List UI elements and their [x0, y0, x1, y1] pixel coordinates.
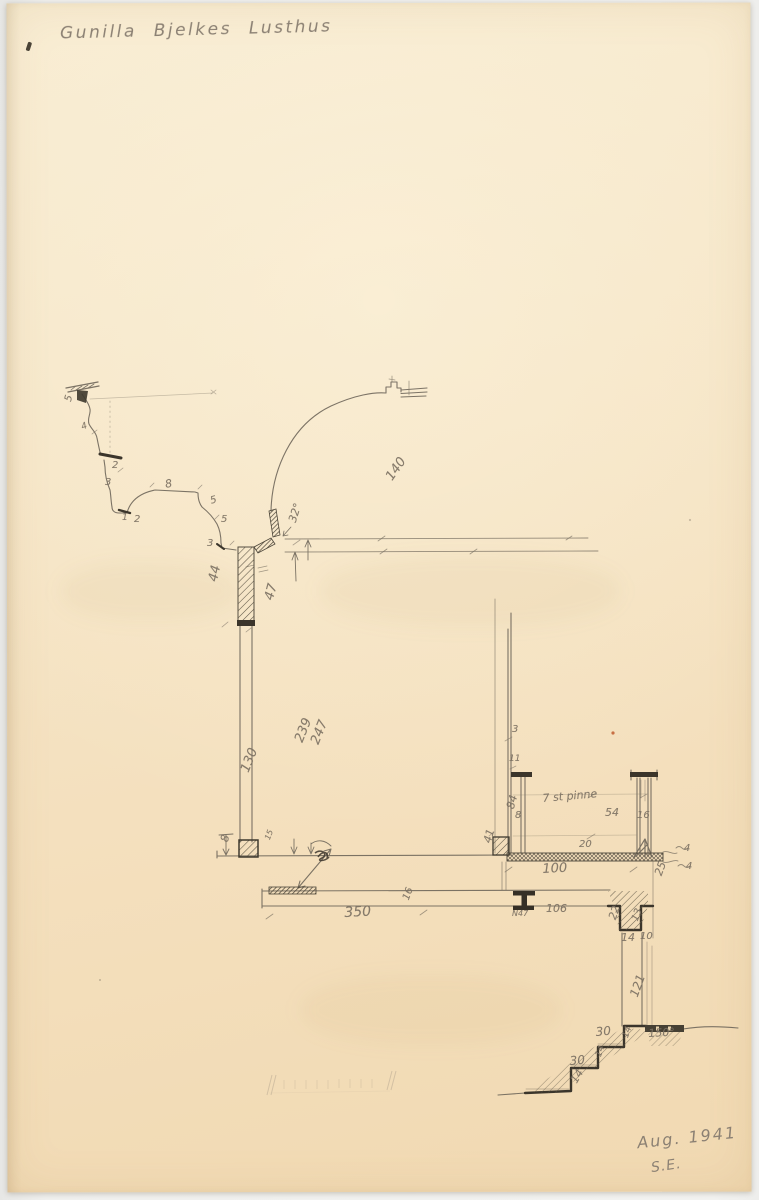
dimension-label: 4: [684, 843, 690, 854]
dimension-label: 100: [542, 861, 568, 877]
dimension-label: 4: [686, 861, 692, 872]
dimension-label: 8: [515, 810, 521, 821]
dimension-label: 3: [512, 724, 518, 735]
dimension-label: 350: [344, 904, 372, 921]
heavy-lines: [100, 454, 653, 1093]
dimension-label: 3: [207, 538, 213, 549]
dimension-label: 54: [605, 806, 619, 819]
scan-background: Gunilla Bjelkes Lusthus 542381255332°444…: [0, 0, 759, 1200]
drawing-layer: Gunilla Bjelkes Lusthus 542381255332°444…: [0, 0, 759, 1200]
dimension-label: 20: [579, 839, 592, 850]
dimension-label: N47: [512, 909, 528, 918]
dimension-label: 1: [122, 513, 128, 523]
dimension-label: 11: [509, 754, 520, 764]
dimension-label: 30: [569, 1053, 585, 1068]
dimension-label: 10: [640, 931, 653, 942]
hatched-sections: [26, 42, 692, 1093]
ghost-scale-bar: [267, 1071, 396, 1095]
section-drawing: [0, 0, 759, 1200]
dimension-label: 30: [595, 1024, 611, 1039]
paper-speck: [611, 731, 614, 734]
dimension-label: 14: [621, 931, 635, 944]
dimension-label: 5: [221, 514, 227, 525]
dimension-label: 3: [105, 477, 111, 488]
dimension-label: 106: [546, 902, 567, 915]
dimension-label: 16: [637, 810, 650, 821]
paper-mark: [26, 42, 33, 52]
dimension-label: 2: [112, 460, 118, 471]
dimension-label: 150°: [648, 1026, 675, 1040]
dimension-label: 2: [134, 514, 140, 525]
